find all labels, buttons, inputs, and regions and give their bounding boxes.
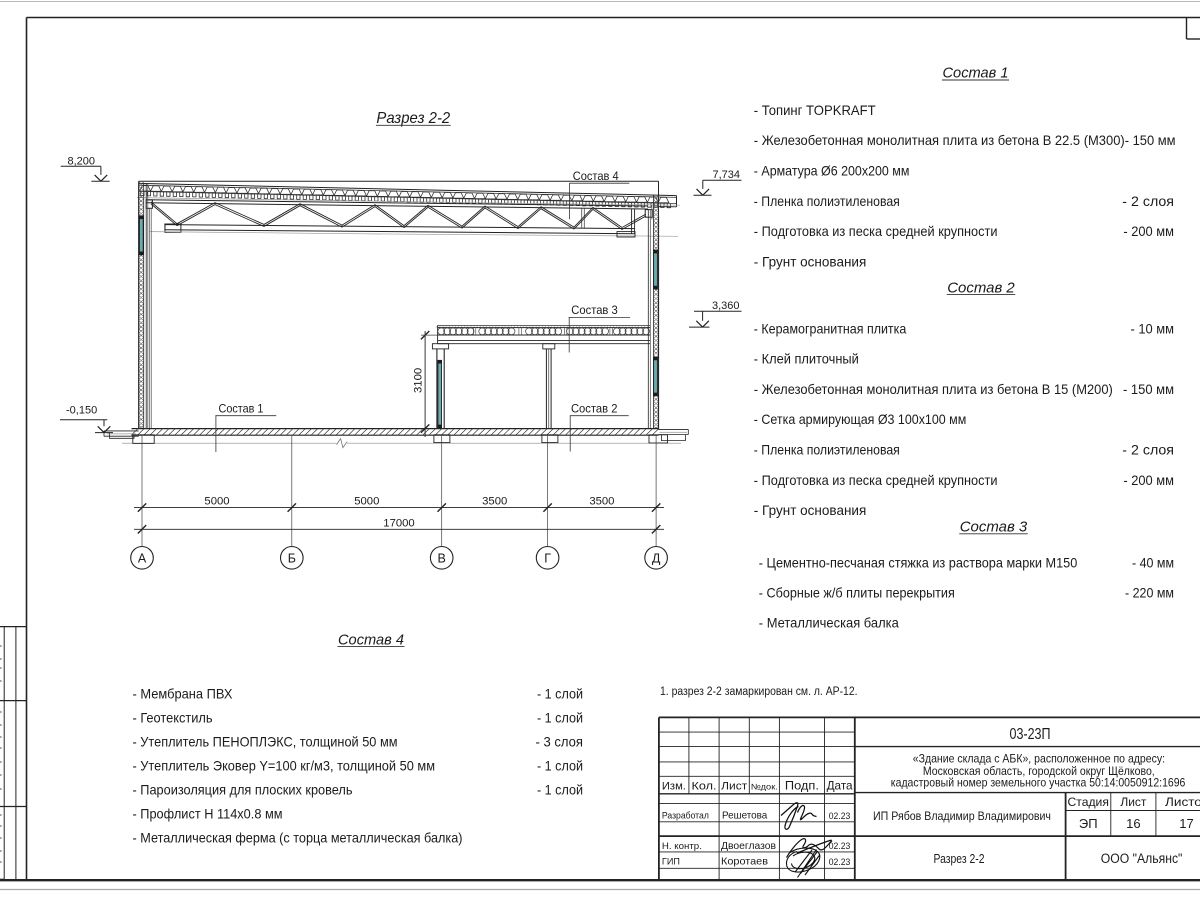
svg-text:- Пленка полиэтиленовая: - Пленка полиэтиленовая [754, 442, 900, 458]
svg-text:3,360: 3,360 [712, 300, 740, 312]
svg-text:- Металлическая ферма (с торца: - Металлическая ферма (с торца металличе… [133, 829, 463, 845]
svg-text:Состав 2: Состав 2 [571, 401, 618, 415]
svg-text:-0,150: -0,150 [66, 405, 97, 417]
svg-text:- Сборные ж/б плиты перекрытия: - Сборные ж/б плиты перекрытия [759, 584, 955, 600]
svg-text:- 1 слой: - 1 слой [537, 709, 583, 725]
svg-text:Стадия: Стадия [1068, 795, 1109, 809]
svg-text:- Профлист Н 114x0.8 мм: - Профлист Н 114x0.8 мм [133, 805, 283, 821]
svg-text:17000: 17000 [383, 517, 414, 529]
svg-text:- Подготовка из песка средней: - Подготовка из песка средней крупности [754, 223, 998, 239]
svg-text:- Железобетонная монолитная п: - Железобетонная монолитная плита из бет… [754, 132, 1176, 148]
svg-text:- 1 слой: - 1 слой [537, 685, 583, 701]
svg-text:- 2 слоя: - 2 слоя [1122, 193, 1174, 209]
svg-text:02.23: 02.23 [829, 857, 851, 868]
svg-text:Кол.: Кол. [692, 781, 717, 793]
svg-text:- Грунт основания: - Грунт основания [754, 253, 867, 269]
svg-text:кадастровый номер земельного у: кадастровый номер земельного участка 50:… [891, 776, 1186, 790]
svg-text:Лист: Лист [721, 781, 747, 793]
svg-text:А: А [138, 551, 147, 565]
svg-text:Состав 1: Состав 1 [219, 401, 264, 415]
svg-text:Разработал: Разработал [662, 811, 709, 821]
svg-text:- 1 слой: - 1 слой [537, 757, 583, 773]
svg-text:Разрез 2-2: Разрез 2-2 [934, 852, 985, 866]
svg-text:Коротаев: Коротаев [721, 857, 769, 868]
svg-text:- Утеплитель Эковер Y=100 кг/м: - Утеплитель Эковер Y=100 кг/м3, толщино… [133, 757, 436, 773]
svg-text:- 40 мм: - 40 мм [1132, 554, 1174, 570]
svg-text:Н. контр.: Н. контр. [662, 841, 702, 851]
svg-text:№док.: №док. [751, 782, 778, 791]
svg-text:- 3 слоя: - 3 слоя [536, 733, 584, 749]
svg-text:- Геотекстиль: - Геотекстиль [133, 709, 213, 725]
svg-text:Состав 4: Состав 4 [338, 631, 404, 648]
svg-text:Листов: Листов [1165, 795, 1200, 809]
svg-text:1. разрез 2-2 замаркирован см.: 1. разрез 2-2 замаркирован см. л. АР-12. [660, 686, 858, 698]
svg-text:Состав 2: Состав 2 [947, 279, 1015, 296]
svg-text:- Утеплитель ПЕНОПЛЭКС, толщин: - Утеплитель ПЕНОПЛЭКС, толщиной 50 мм [133, 733, 398, 749]
svg-text:Состав 1: Состав 1 [943, 65, 1009, 82]
svg-text:- Подготовка из песка средней: - Подготовка из песка средней крупности [754, 472, 998, 488]
svg-text:Состав 3: Состав 3 [571, 303, 618, 317]
svg-text:- 200 мм: - 200 мм [1123, 223, 1174, 239]
svg-text:16: 16 [1126, 816, 1140, 831]
svg-text:3500: 3500 [482, 496, 507, 508]
svg-text:- Пленка полиэтиленовая: - Пленка полиэтиленовая [754, 193, 900, 209]
svg-text:- 10 мм: - 10 мм [1131, 320, 1175, 336]
svg-text:Разрез 2-2: Разрез 2-2 [376, 110, 450, 127]
svg-text:- Металлическая балка: - Металлическая балка [759, 614, 899, 630]
svg-text:- Арматура Ø6 200x200 мм: - Арматура Ø6 200x200 мм [754, 163, 910, 179]
svg-text:Двоеглазов: Двоеглазов [721, 841, 777, 852]
svg-text:- Железобетонная монолитная п: - Железобетонная монолитная плита из бет… [754, 381, 1113, 397]
svg-text:Состав 3: Состав 3 [960, 519, 1028, 536]
svg-text:02.23: 02.23 [829, 841, 851, 852]
svg-text:В: В [438, 551, 446, 565]
svg-text:- Топинг TOPKRAFT: - Топинг TOPKRAFT [754, 102, 876, 118]
svg-text:Б: Б [288, 551, 296, 565]
svg-text:ЭП: ЭП [1079, 816, 1098, 831]
svg-text:- Сетка армирующая Ø3 100x100: - Сетка армирующая Ø3 100x100 мм [754, 411, 967, 427]
svg-text:ГИП: ГИП [662, 857, 680, 867]
svg-text:- Мембрана ПВХ: - Мембрана ПВХ [133, 685, 234, 701]
svg-text:3100: 3100 [412, 368, 424, 393]
svg-text:Д: Д [652, 551, 661, 565]
svg-text:3500: 3500 [589, 496, 614, 508]
svg-text:7,734: 7,734 [713, 169, 741, 181]
svg-text:- Клей плиточный: - Клей плиточный [754, 351, 859, 367]
svg-text:Г: Г [544, 551, 551, 565]
svg-text:8,200: 8,200 [68, 155, 96, 167]
svg-text:Решетова: Решетова [722, 811, 768, 822]
svg-text:03-23П: 03-23П [1010, 726, 1051, 743]
svg-text:Дата: Дата [827, 779, 853, 793]
svg-text:- Керамогранитная плитка: - Керамогранитная плитка [754, 320, 907, 336]
svg-text:Лист: Лист [1120, 795, 1146, 809]
svg-text:ООО "Альянс": ООО "Альянс" [1101, 851, 1183, 866]
svg-text:ИП Рябов Владимир Владимирович: ИП Рябов Владимир Владимирович [873, 809, 1051, 823]
svg-text:17: 17 [1179, 816, 1193, 831]
svg-text:- 200 мм: - 200 мм [1123, 472, 1174, 488]
svg-text:5000: 5000 [204, 496, 229, 508]
svg-text:- Грунт основания: - Грунт основания [754, 502, 867, 518]
svg-text:- Цементно-песчаная стяжка из: - Цементно-песчаная стяжка из раствора м… [759, 554, 1078, 570]
svg-text:- 1 слой: - 1 слой [537, 781, 583, 797]
svg-text:Состав 4: Состав 4 [573, 169, 619, 183]
svg-text:Изм.: Изм. [662, 781, 686, 793]
svg-text:5000: 5000 [354, 496, 379, 508]
svg-text:- 2 слоя: - 2 слоя [1122, 442, 1174, 458]
svg-text:02.23: 02.23 [829, 811, 851, 822]
svg-text:- 220 мм: - 220 мм [1125, 584, 1174, 600]
svg-text:- 150 мм: - 150 мм [1123, 381, 1174, 397]
svg-text:Подп.: Подп. [785, 779, 819, 793]
svg-text:- Пароизоляция для плоских кро: - Пароизоляция для плоских кровель [133, 781, 353, 797]
